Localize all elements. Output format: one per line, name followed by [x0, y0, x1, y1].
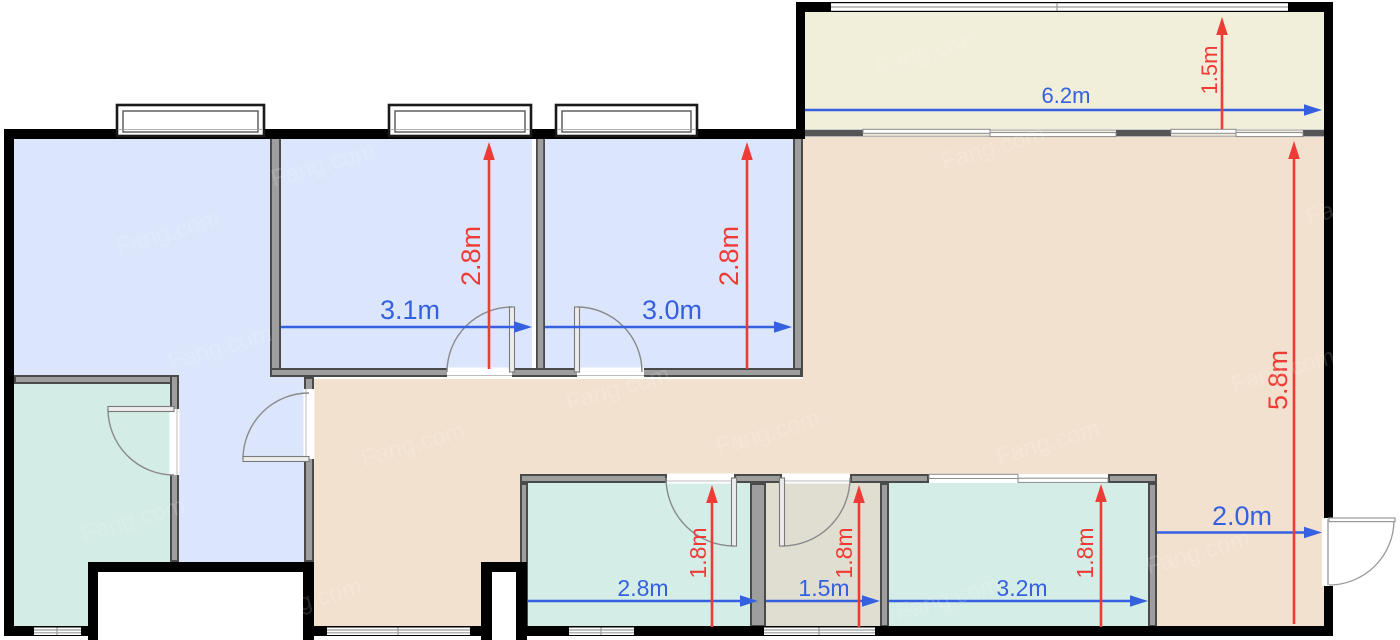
svg-text:3.2m: 3.2m: [996, 575, 1047, 601]
svg-text:2.8m: 2.8m: [456, 226, 486, 286]
svg-text:1.8m: 1.8m: [685, 527, 711, 578]
svg-text:6.2m: 6.2m: [1042, 83, 1091, 108]
svg-text:2.8m: 2.8m: [714, 226, 744, 286]
svg-text:3.1m: 3.1m: [380, 295, 440, 325]
svg-text:1.5m: 1.5m: [1197, 46, 1222, 95]
svg-text:2.8m: 2.8m: [617, 575, 668, 601]
svg-text:1.8m: 1.8m: [1072, 527, 1098, 578]
svg-text:3.0m: 3.0m: [642, 295, 702, 325]
svg-text:1.8m: 1.8m: [831, 527, 857, 578]
